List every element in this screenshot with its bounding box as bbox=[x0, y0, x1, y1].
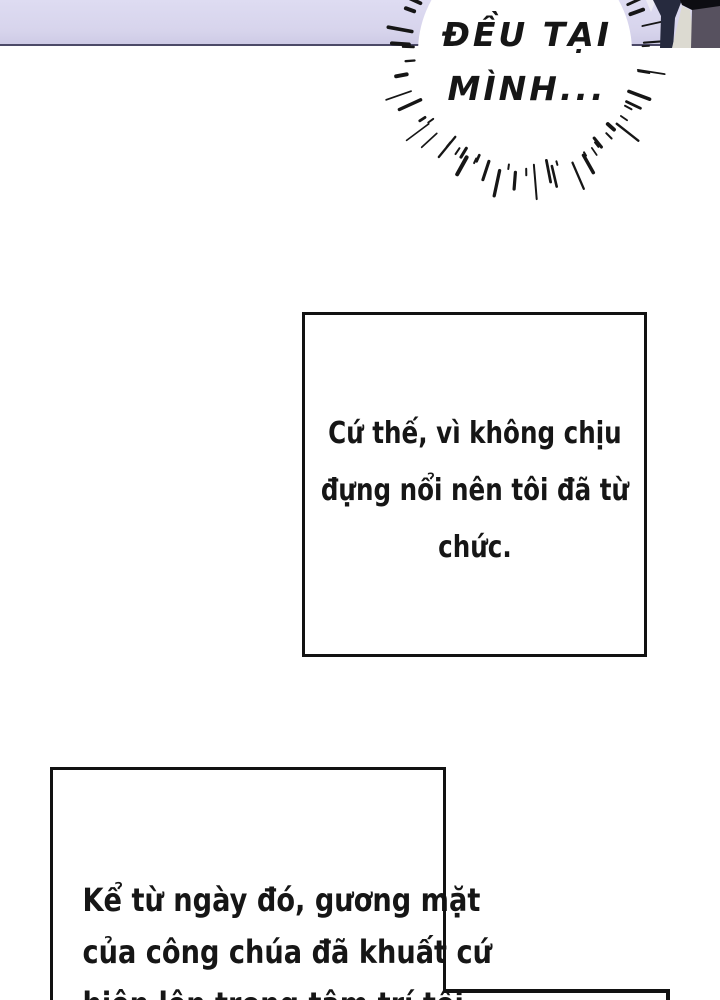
next-panel-border-vertical bbox=[666, 989, 670, 1000]
speech-bubble-line: ĐỀU TẠI bbox=[420, 8, 634, 62]
speech-bubble-text: ĐỀU TẠI MÌNH... bbox=[420, 8, 634, 116]
caption-line: đựng nổi nên tôi đã từ bbox=[320, 462, 628, 519]
figure-shoulder-gray bbox=[691, 4, 720, 48]
caption-box-bottom: Kể từ ngày đó, gương mặt của công chúa đ… bbox=[50, 767, 446, 1000]
caption-bottom-text: Kể từ ngày đó, gương mặt của công chúa đ… bbox=[82, 770, 416, 1000]
caption-line: của công chúa đã khuất cứ bbox=[82, 926, 416, 978]
comic-page: ĐỀU TẠI MÌNH... Cứ thế, vì không chịu đự… bbox=[0, 0, 720, 1000]
next-panel-border-horizontal bbox=[443, 989, 670, 993]
caption-mid-text: Cứ thế, vì không chịu đựng nổi nên tôi đ… bbox=[320, 393, 628, 576]
character-figure-cropped bbox=[620, 0, 720, 48]
speech-bubble-line: MÌNH... bbox=[420, 62, 634, 116]
caption-box-mid: Cứ thế, vì không chịu đựng nổi nên tôi đ… bbox=[302, 312, 647, 657]
caption-line: Kể từ ngày đó, gương mặt bbox=[82, 874, 416, 926]
caption-line: hiện lên trong tâm trí tôi bbox=[82, 978, 416, 1000]
caption-line: Cứ thế, vì không chịu bbox=[320, 405, 628, 462]
caption-line: chức. bbox=[320, 519, 628, 576]
caption-box-bottom-right-border bbox=[443, 767, 446, 992]
